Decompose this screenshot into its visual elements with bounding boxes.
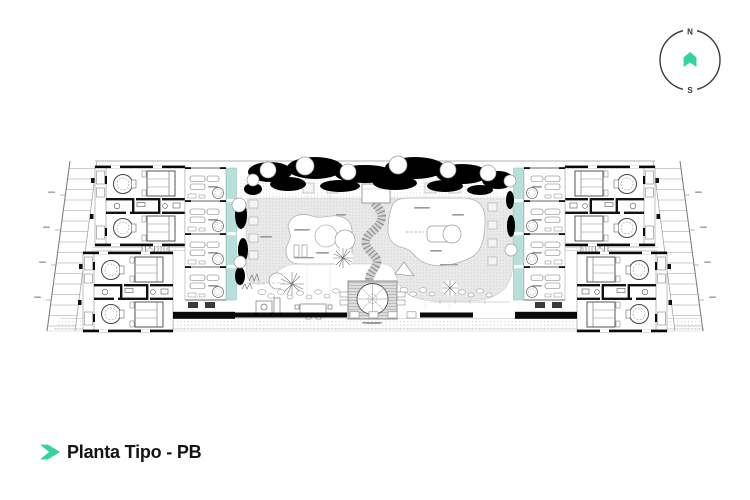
courtyard: [232, 156, 517, 324]
floor-plan-drawing: [0, 0, 750, 500]
page-title: Planta Tipo - PB: [67, 443, 201, 461]
street-wall: [173, 312, 577, 319]
page: N S Planta Tipo - PB: [0, 0, 750, 500]
chevron-right-icon: [40, 444, 60, 460]
compass-north-label: N: [687, 28, 693, 37]
compass-rose: N S: [656, 26, 724, 94]
compass-south-label: S: [687, 86, 693, 94]
drawing-title: Planta Tipo - PB: [40, 443, 201, 461]
